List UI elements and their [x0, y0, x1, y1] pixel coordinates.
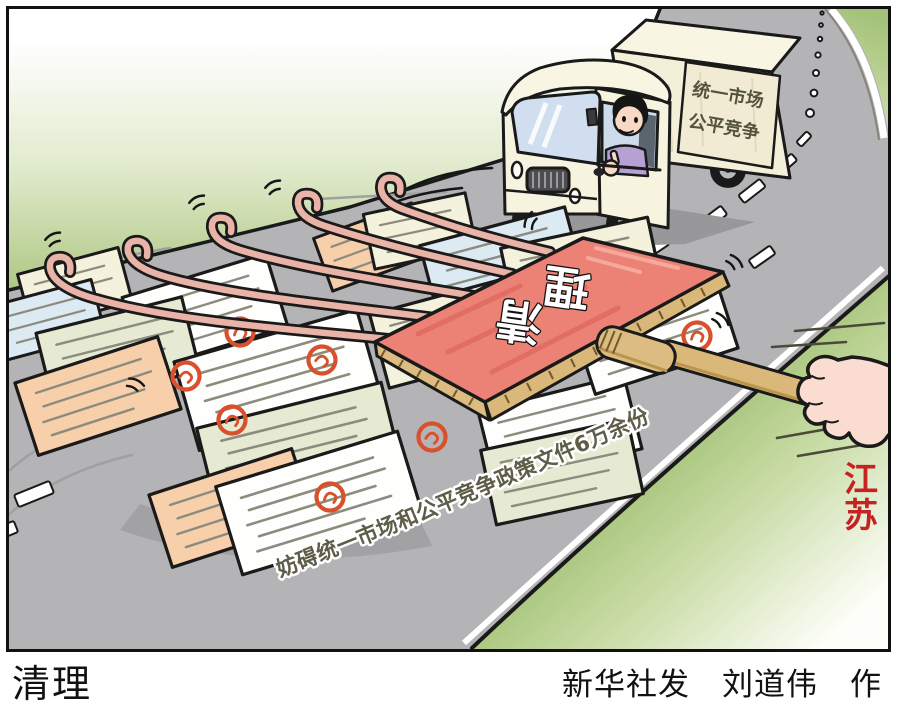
lane-dot [813, 70, 819, 76]
lane-dot [811, 90, 818, 97]
editorial-cartoon: 统一市场 公平竞争 [0, 0, 899, 706]
lane-dot [818, 37, 822, 41]
lane-dot [820, 11, 823, 14]
lane-dot [806, 109, 814, 117]
lane-dot [815, 52, 820, 57]
lane-dot [819, 23, 823, 27]
region-label: 江 苏 [844, 460, 878, 536]
windshield [512, 92, 600, 164]
region-label-char1: 江 [844, 460, 878, 500]
board-label-char1: 清 [492, 291, 545, 351]
editorial-cartoon-page: 统一市场 公平竞争 [0, 0, 899, 706]
board-label-char2: 理 [540, 257, 593, 317]
side-mirror [587, 109, 598, 126]
region-label-char2: 苏 [844, 496, 878, 536]
truck-cab [502, 60, 670, 228]
headlight-left [512, 162, 522, 178]
title-caption: 清理 [12, 664, 92, 706]
credit-caption: 新华社发 刘道伟 作 [562, 667, 882, 702]
